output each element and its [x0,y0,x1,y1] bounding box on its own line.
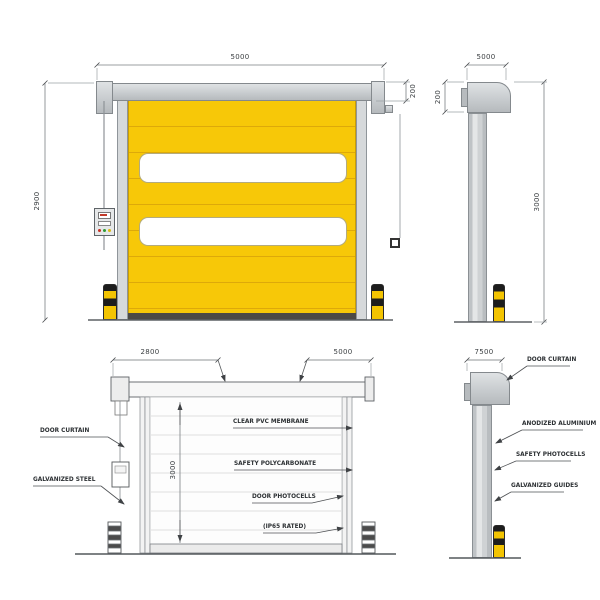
control-display-2 [98,221,111,226]
label-safety-photocells: SAFETY PHOTOCELLS [516,452,585,458]
display-segment [100,214,107,216]
dim-side-width: 5000 [476,53,495,61]
dim-side-header: 200 [434,90,442,104]
dim-detail-total-width: 5000 [333,348,352,356]
label-galvanized-guides: GALVANIZED GUIDES [511,483,578,489]
vision-window-2 [139,217,347,246]
label-safety-polycarbonate: SAFETY POLYCARBONATE [234,461,316,467]
dim-detail-curtain-width: 2800 [140,348,159,356]
dim-front-width: 5000 [230,53,249,61]
side-top-box [467,82,511,113]
detail-side-post [472,405,492,558]
side-post [468,113,487,322]
control-display [98,212,111,219]
dim-front-header: 200 [409,84,417,98]
dim-side-detail-width: 7500 [474,348,493,356]
bollard-side [493,284,505,322]
dim-side-height: 3000 [533,192,541,211]
label-clear-pvc: CLEAR PVC MEMBRANE [233,419,309,425]
vision-window-1 [139,153,347,183]
bollard-front-left [103,284,117,320]
dim-detail-height: 3000 [169,460,177,479]
drawing-canvas: 5000 2900 200 5000 200 3000 2800 5000 30… [0,0,600,600]
warn-indicator [108,229,111,232]
wall-sensor [390,238,400,248]
label-ip-rating: (IP65 RATED) [263,524,306,530]
label-galvanized-steel: GALVANIZED STEEL [33,477,95,483]
bollard-front-right [371,284,384,320]
front-detail-lines [33,358,396,555]
end-cap-left [96,81,113,114]
label-door-curtain-front: DOOR CURTAIN [40,428,89,434]
end-cap-right [371,81,385,114]
run-indicator [103,229,106,232]
guide-left [117,100,128,320]
motor-box [385,105,393,113]
label-photocells: DOOR PHOTOCELLS [252,494,316,500]
side-box-tab [461,88,468,107]
guide-right [356,100,367,320]
bottom-bar [128,313,356,320]
door-curtain [128,101,356,313]
header-box [112,83,374,101]
bollard-side-detail [493,525,505,558]
dim-front-height: 2900 [33,191,41,210]
label-door-curtain-side: DOOR CURTAIN [527,357,576,363]
detail-side-top-box [470,372,510,405]
control-box [94,208,115,236]
detail-side-box-tab [464,383,471,401]
stop-indicator [98,229,101,232]
label-anodized-aluminium: ANODIZED ALUMINIUM [522,421,596,427]
